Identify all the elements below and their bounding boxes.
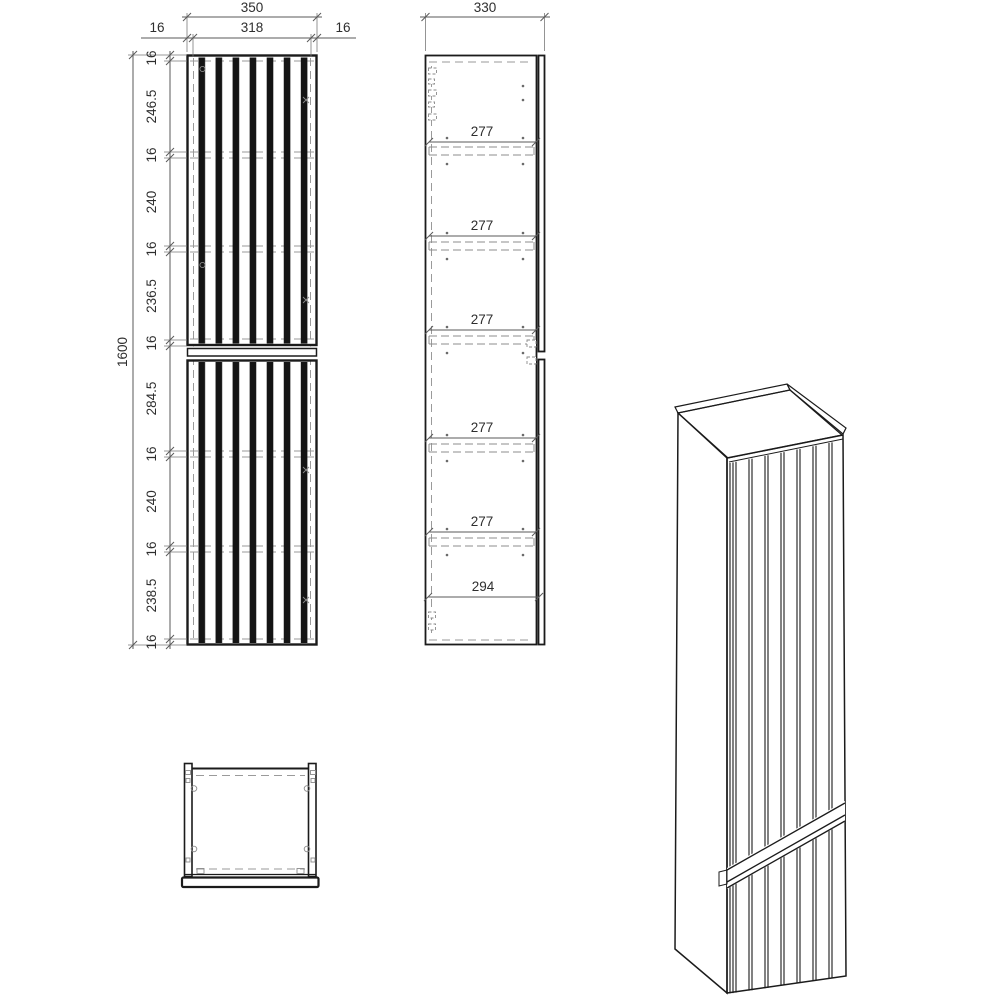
persp-slat-grooves — [730, 442, 832, 993]
section-hidden-lines — [429, 62, 533, 640]
dim-label-side-left: 16 — [149, 20, 164, 35]
chain-label-0: 16 — [144, 50, 159, 65]
dim-label-comp-3: 277 — [471, 312, 494, 327]
lower-door-slats — [199, 362, 309, 643]
technical-drawing-page: 350 16 318 16 1600 16 246.5 16 240 16 23… — [0, 0, 1000, 1000]
dim-label-comp-2: 277 — [471, 218, 494, 233]
section-upper-door — [539, 56, 545, 352]
upper-door-slats — [199, 58, 309, 344]
chain-label-9: 240 — [144, 490, 159, 513]
dim-label-height-total: 1600 — [115, 337, 130, 367]
persp-door-top-edge — [729, 439, 843, 462]
front-left-dimensions: 1600 16 246.5 16 240 16 236.5 16 284.5 1… — [115, 50, 187, 649]
persp-left-face — [675, 413, 727, 993]
dim-label-width-inner: 318 — [241, 20, 264, 35]
chain-label-2: 16 — [144, 147, 159, 162]
persp-left-top-rail — [675, 384, 790, 413]
perspective-view — [675, 384, 846, 993]
plan-hidden-lines — [196, 776, 305, 870]
chain-label-1: 246.5 — [144, 90, 159, 124]
plan-front-door — [182, 878, 319, 888]
chain-label-4: 16 — [144, 241, 159, 256]
extension-lines-330 — [426, 13, 545, 51]
persp-top-face — [678, 390, 842, 458]
dim-label-comp-5: 277 — [471, 514, 494, 529]
section-internal-dimensions: 277 277 277 277 277 294 — [424, 124, 543, 601]
chain-label-7: 284.5 — [144, 382, 159, 416]
chain-label-10: 16 — [144, 541, 159, 556]
plan-view — [182, 764, 319, 888]
drawing-canvas: 350 16 318 16 1600 16 246.5 16 240 16 23… — [0, 0, 1000, 1000]
chain-label-8: 16 — [144, 446, 159, 461]
persp-front-face — [727, 435, 846, 993]
dim-label-comp-6: 294 — [472, 579, 495, 594]
plan-corner-fittings — [186, 771, 316, 874]
front-top-dimensions: 350 16 318 16 — [141, 0, 356, 57]
dim-label-depth-total: 330 — [474, 0, 497, 15]
persp-rail-end-cap — [719, 870, 727, 886]
side-section-view: 277 277 277 277 277 294 330 — [420, 0, 550, 645]
chain-label-11: 238.5 — [144, 579, 159, 613]
dim-label-width-total: 350 — [241, 0, 264, 15]
carcase-outline — [426, 56, 537, 645]
section-lower-door — [539, 360, 545, 645]
dim-label-side-right: 16 — [335, 20, 350, 35]
dim-line-comp-6 — [424, 593, 543, 601]
section-top-dimension: 330 — [420, 0, 550, 51]
chain-label-3: 240 — [144, 191, 159, 214]
shelf-band-4 — [429, 444, 534, 452]
persp-split-mask — [727, 801, 845, 889]
shelf-band-5 — [429, 538, 534, 546]
chain-label-12: 16 — [144, 634, 159, 649]
shelf-band-3 — [429, 336, 534, 344]
dim-label-comp-1: 277 — [471, 124, 494, 139]
persp-right-top-rail — [787, 384, 846, 434]
front-elevation-view — [186, 56, 318, 645]
shelf-band-2 — [429, 242, 534, 250]
chain-label-5: 236.5 — [144, 279, 159, 313]
dim-label-comp-4: 277 — [471, 420, 494, 435]
chain-label-6: 16 — [144, 335, 159, 350]
shelf-band-1 — [429, 147, 534, 155]
